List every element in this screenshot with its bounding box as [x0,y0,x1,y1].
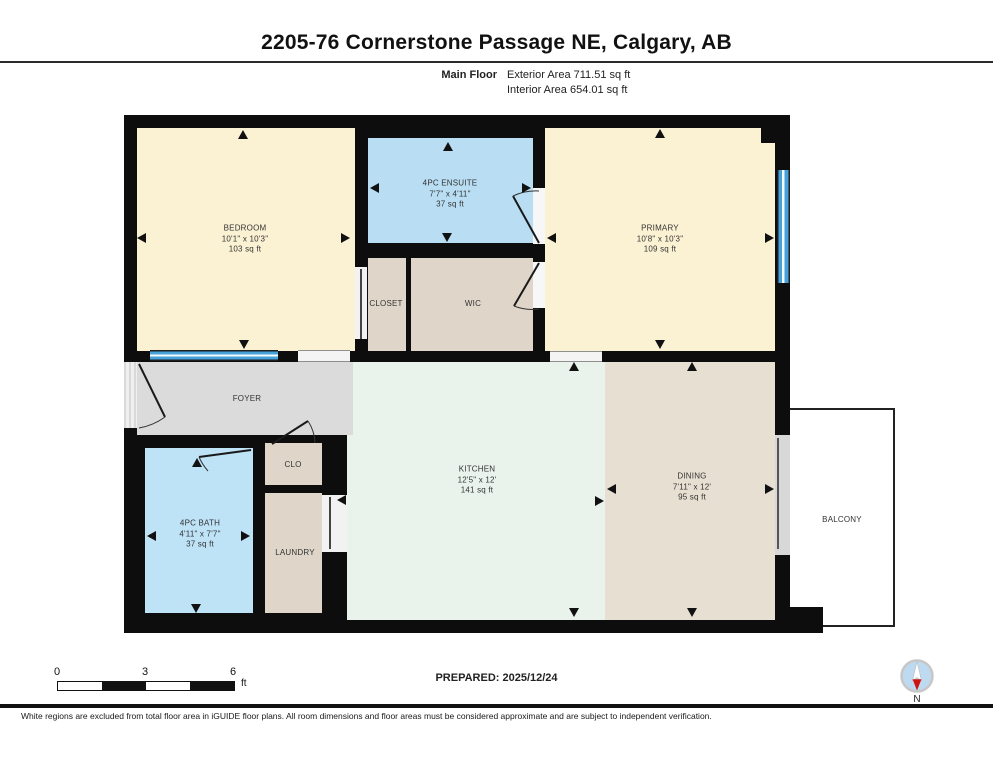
label-bath: 4PC BATH4'11" x 7'7"37 sq ft [179,518,220,550]
label-line: 37 sq ft [179,539,220,550]
floorplan-canvas: BEDROOM10'1" x 10'3"103 sq ft4PC ENSUITE… [0,0,993,768]
window-primary-window [777,170,790,283]
label-line: LAUNDRY [275,548,315,559]
label-closet: CLOSET [369,299,402,310]
measure-arrow-right [765,484,774,494]
label-clo: CLO [284,460,301,471]
entry-opening [124,362,137,428]
label-line: 4PC BATH [179,518,220,529]
label-line: DINING [673,471,711,482]
label-line: CLOSET [369,299,402,310]
measure-arrow-left [137,233,146,243]
label-line: 141 sq ft [458,485,497,496]
label-line: FOYER [233,394,262,405]
prepared-date: PREPARED: 2025/12/24 [0,672,993,684]
label-line: 10'8" x 10'3" [637,234,683,245]
measure-arrow-up [569,362,579,371]
label-line: 7'7" x 4'11" [423,189,478,200]
measure-arrow-left [370,183,379,193]
measure-arrow-left [147,531,156,541]
compass-icon [898,657,936,695]
measure-arrow-right [765,233,774,243]
label-line: 109 sq ft [637,244,683,255]
label-line: PRIMARY [637,223,683,234]
label-kitchen: KITCHEN12'5" x 12'141 sq ft [458,464,497,496]
label-line: 95 sq ft [673,492,711,503]
label-dining: DINING7'11" x 12'95 sq ft [673,471,711,503]
label-line: KITCHEN [458,464,497,475]
bedroom-foyer-opening [298,350,350,362]
label-foyer: FOYER [233,394,262,405]
measure-arrow-left [607,484,616,494]
label-balcony: BALCONY [822,515,862,526]
wic-door-gap [533,262,545,308]
ensuite-door-gap [533,188,545,244]
label-line: 12'5" x 12' [458,475,497,486]
measure-arrow-down [191,604,201,613]
floorplan-page: 2205-76 Cornerstone Passage NE, Calgary,… [0,0,993,768]
measure-arrow-down [239,340,249,349]
label-laundry: LAUNDRY [275,548,315,559]
label-bedroom: BEDROOM10'1" x 10'3"103 sq ft [222,223,268,255]
footer-divider [0,704,993,708]
label-line: BALCONY [822,515,862,526]
wall-notch-primary-top-right [761,128,775,143]
measure-arrow-right [595,496,604,506]
label-line: CLO [284,460,301,471]
wall-notch-balcony-bottom-wall [788,607,823,633]
label-line: WIC [465,299,481,310]
measure-arrow-right [341,233,350,243]
label-wic: WIC [465,299,481,310]
measure-arrow-up [192,458,202,467]
measure-arrow-up [655,129,665,138]
window-bedroom-window [150,350,278,361]
measure-arrow-up [238,130,248,139]
measure-arrow-left [337,495,346,505]
label-line: 10'1" x 10'3" [222,234,268,245]
label-primary: PRIMARY10'8" x 10'3"109 sq ft [637,223,683,255]
measure-arrow-down [687,608,697,617]
label-line: 7'11" x 12' [673,482,711,493]
balcony-door-gap [775,435,790,555]
measure-arrow-down [569,608,579,617]
measure-arrow-up [443,142,453,151]
label-ensuite: 4PC ENSUITE7'7" x 4'11"37 sq ft [423,178,478,210]
label-line: BEDROOM [222,223,268,234]
label-line: 4PC ENSUITE [423,178,478,189]
measure-arrow-up [687,362,697,371]
disclaimer-text: White regions are excluded from total fl… [21,711,971,721]
label-line: 103 sq ft [222,244,268,255]
measure-arrow-right [522,183,531,193]
measure-arrow-down [655,340,665,349]
primary-kitchen-opening [550,351,602,362]
label-line: 4'11" x 7'7" [179,529,220,540]
measure-arrow-right [241,531,250,541]
measure-arrow-left [547,233,556,243]
closet-door-gap [355,267,367,339]
measure-arrow-down [442,233,452,242]
label-line: 37 sq ft [423,199,478,210]
